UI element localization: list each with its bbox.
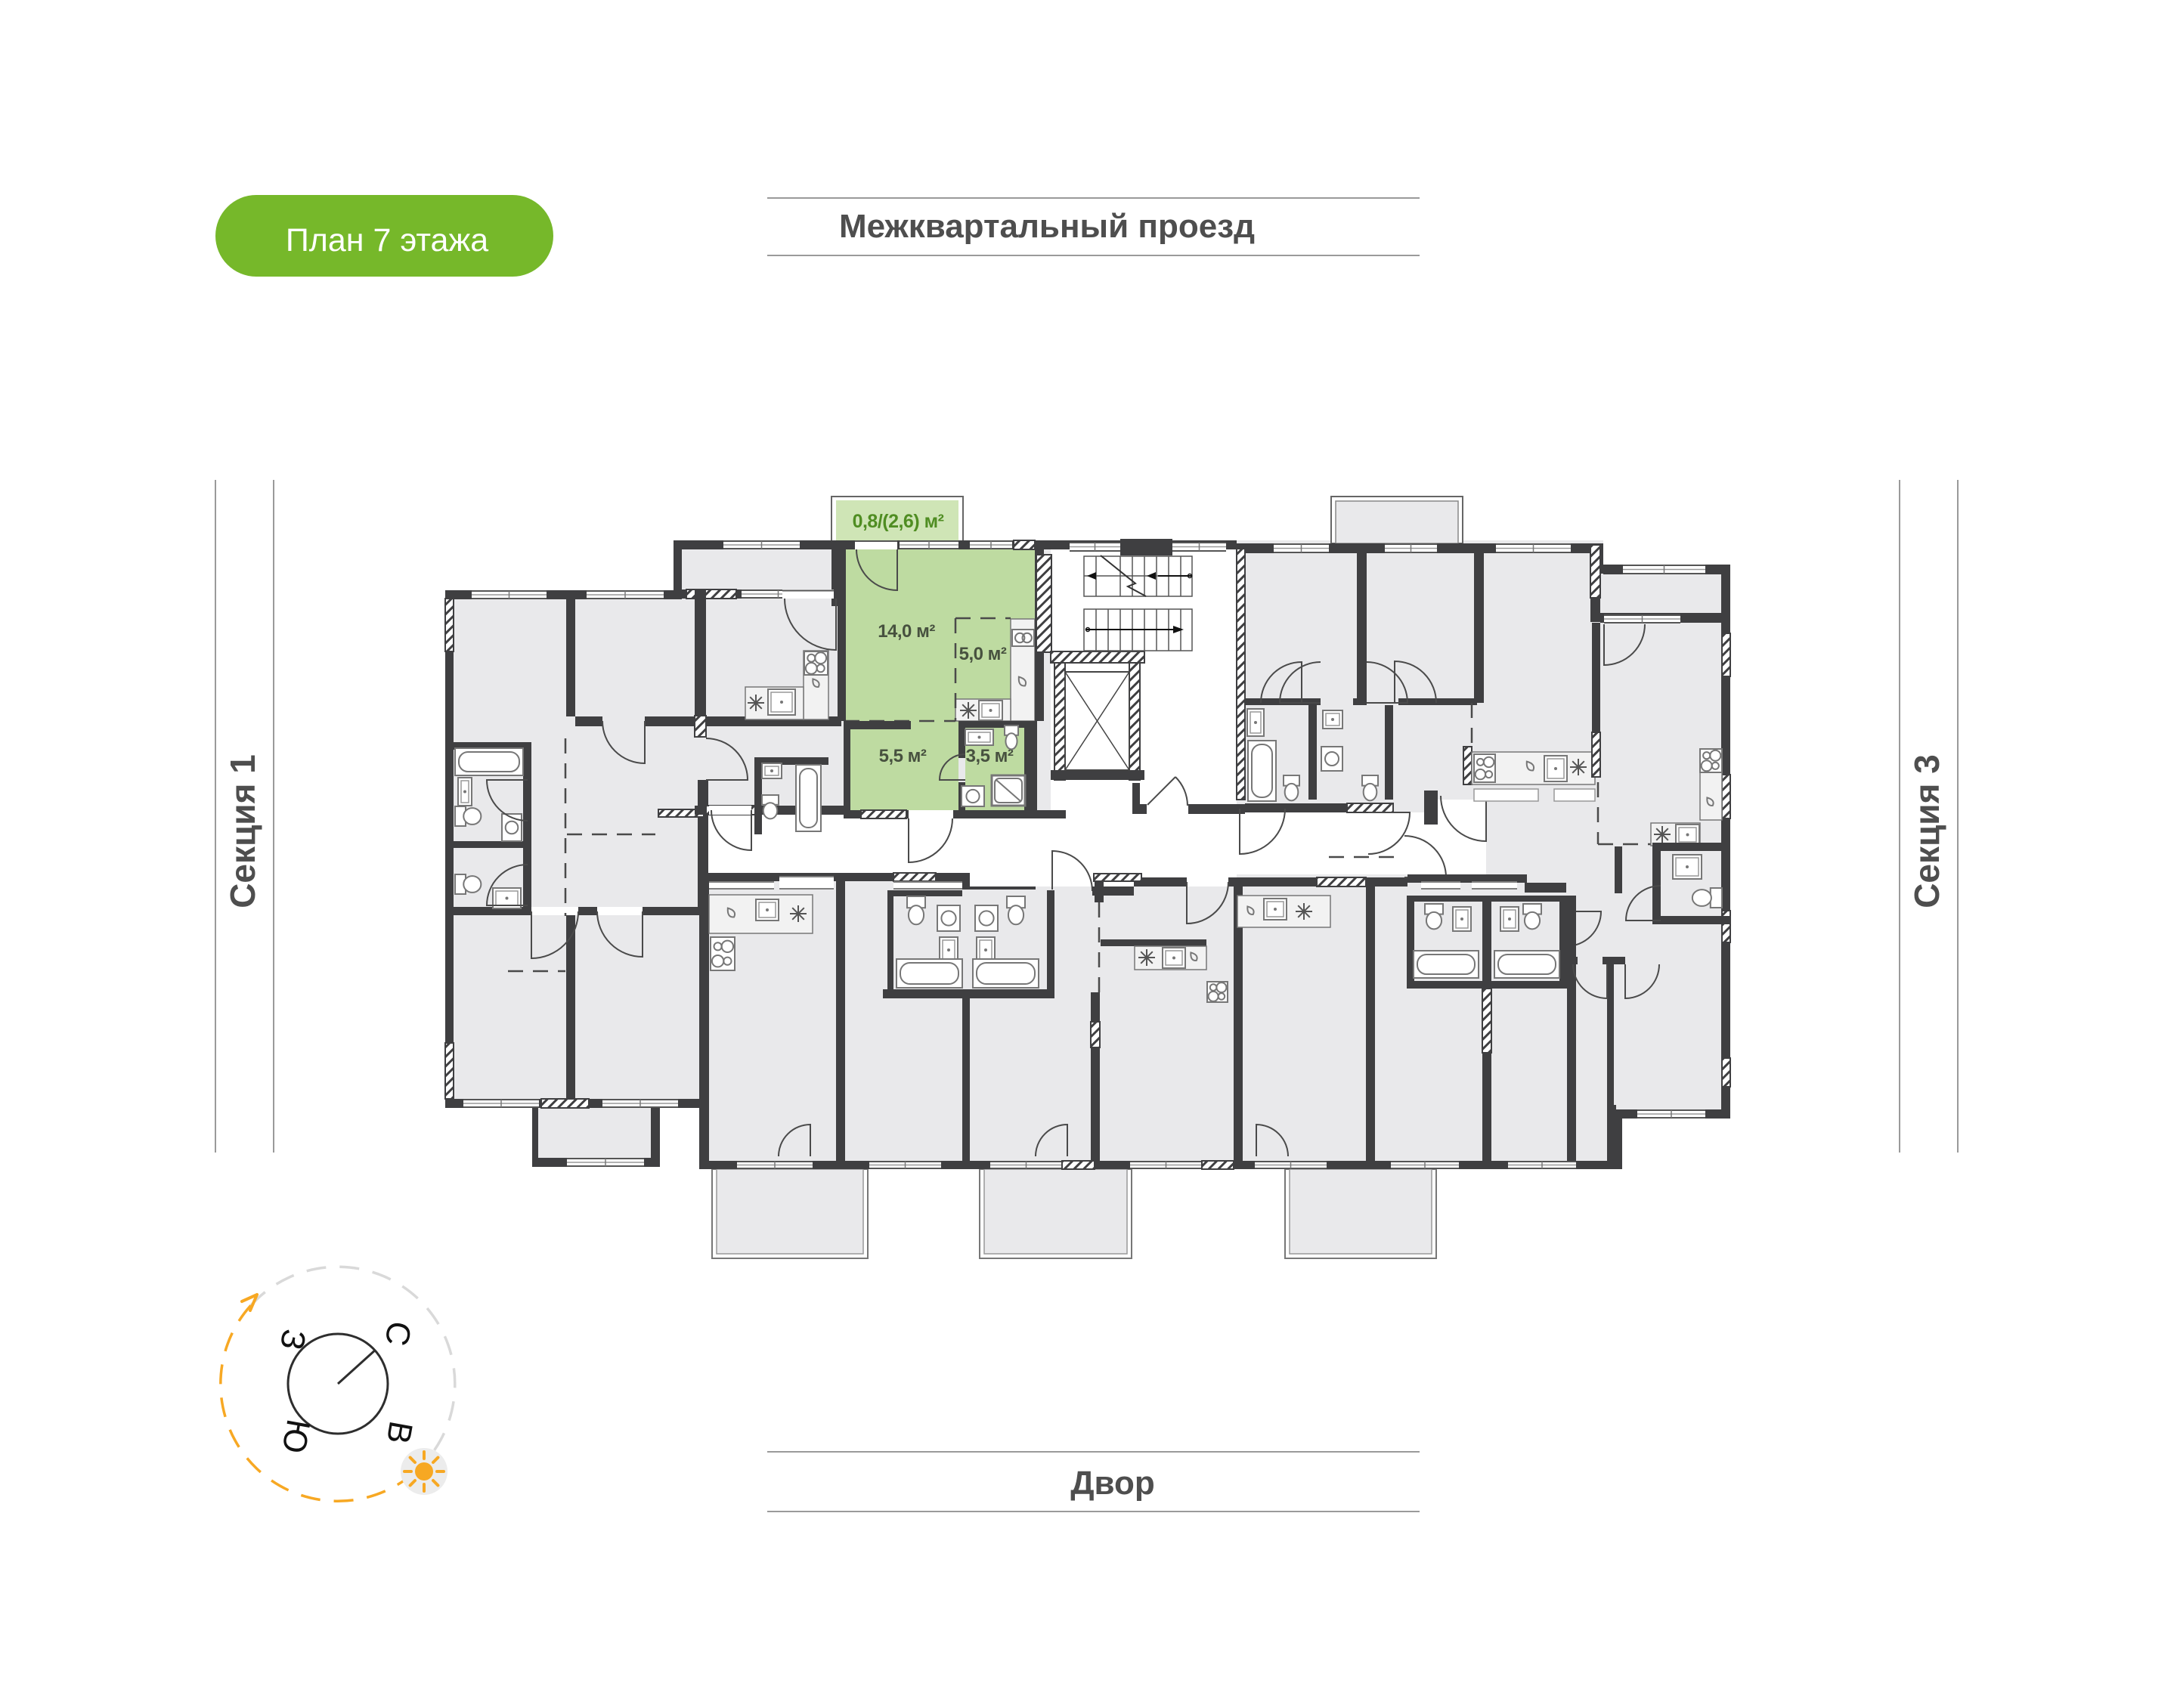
svg-text:Межквартальный проезд: Межквартальный проезд (839, 208, 1255, 245)
svg-text:3,5 м²: 3,5 м² (966, 746, 1014, 766)
svg-text:Ю: Ю (274, 1416, 317, 1456)
svg-text:5,5 м²: 5,5 м² (879, 746, 927, 766)
svg-text:5,0 м²: 5,0 м² (959, 644, 1007, 664)
svg-text:Секция 3: Секция 3 (1907, 754, 1946, 908)
svg-text:План 7 этажа: План 7 этажа (286, 222, 488, 258)
svg-text:Двор: Двор (1070, 1465, 1155, 1502)
svg-text:14,0 м²: 14,0 м² (878, 621, 935, 642)
svg-text:Секция 1: Секция 1 (223, 754, 262, 908)
svg-text:0,8/(2,6) м²: 0,8/(2,6) м² (853, 511, 944, 532)
